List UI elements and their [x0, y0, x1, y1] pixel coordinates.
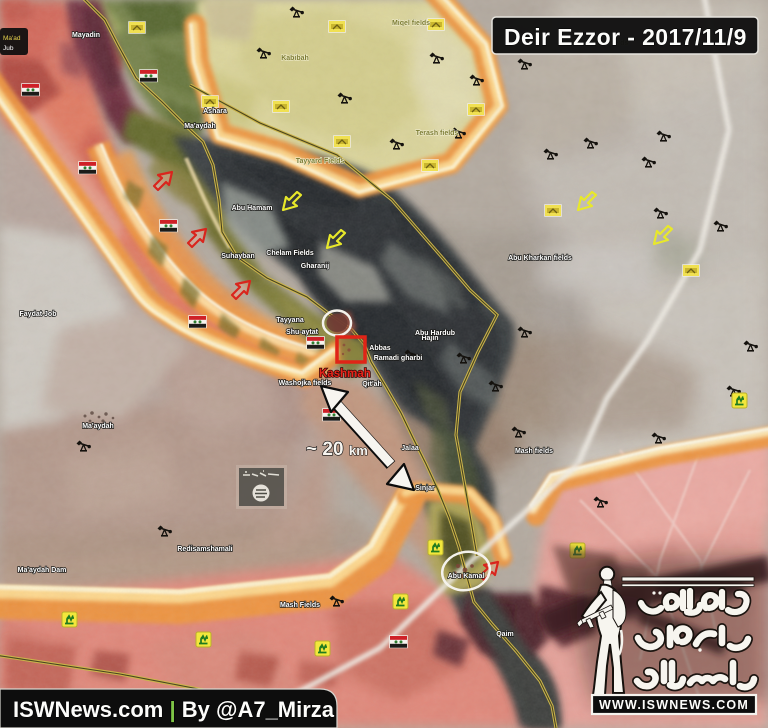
svg-text:Miqel fields: Miqel fields [392, 20, 430, 27]
svg-text:Terash fields: Terash fields [416, 130, 459, 137]
svg-text:Mash Fields: Mash Fields [280, 602, 320, 609]
svg-text:Ma'aydah Dam: Ma'aydah Dam [18, 567, 67, 574]
svg-text:Abu Kharkan fields: Abu Kharkan fields [508, 255, 572, 262]
svg-text:Jub: Jub [3, 45, 14, 52]
svg-text:Ashara: Ashara [203, 108, 227, 115]
svg-text:Kabibah: Kabibah [281, 55, 309, 62]
svg-text:Kashmah: Kashmah [319, 368, 371, 380]
svg-text:WWW.ISWNEWS.COM: WWW.ISWNEWS.COM [599, 698, 749, 712]
svg-text:~ 20: ~ 20 [306, 439, 344, 460]
svg-text:Abu Kamal: Abu Kamal [448, 573, 485, 580]
svg-text:Redisamshamali: Redisamshamali [177, 546, 232, 553]
svg-text:km: km [349, 443, 368, 458]
svg-text:Faydat Job: Faydat Job [20, 311, 57, 318]
svg-text:Chelam Fields: Chelam Fields [266, 250, 314, 257]
svg-text:Abu Hardub: Abu Hardub [415, 330, 455, 337]
svg-text:Shu-aytat: Shu-aytat [286, 329, 319, 336]
svg-text:Gharanij: Gharanij [301, 263, 329, 270]
svg-text:Tayyana: Tayyana [276, 317, 304, 324]
svg-text:Washojka fields: Washojka fields [279, 380, 332, 387]
svg-text:Abbas: Abbas [369, 345, 391, 352]
svg-text:Mash fields: Mash fields [515, 448, 553, 455]
svg-text:Qit'ah: Qit'ah [362, 381, 382, 388]
svg-text:Ma'ad: Ma'ad [3, 35, 21, 42]
svg-text:Abu Hamam: Abu Hamam [232, 205, 273, 212]
svg-text:Tayyard Fields: Tayyard Fields [296, 158, 345, 165]
svg-text:Deir Ezzor - 2017/11/9: Deir Ezzor - 2017/11/9 [504, 24, 747, 50]
svg-text:Ramadi gharbi: Ramadi gharbi [374, 355, 423, 362]
svg-text:Mayadin: Mayadin [72, 32, 100, 39]
svg-text:Qaim: Qaim [496, 631, 514, 638]
svg-text:ISWNews.com | By @A7_Mirza: ISWNews.com | By @A7_Mirza [13, 697, 335, 722]
svg-text:Ma'aydah: Ma'aydah [82, 423, 114, 430]
svg-text:Sinjar: Sinjar [415, 485, 435, 492]
svg-text:Ma'aydah: Ma'aydah [184, 123, 216, 130]
svg-text:Jalaa: Jalaa [401, 445, 419, 452]
svg-text:Suhayban: Suhayban [221, 253, 254, 260]
